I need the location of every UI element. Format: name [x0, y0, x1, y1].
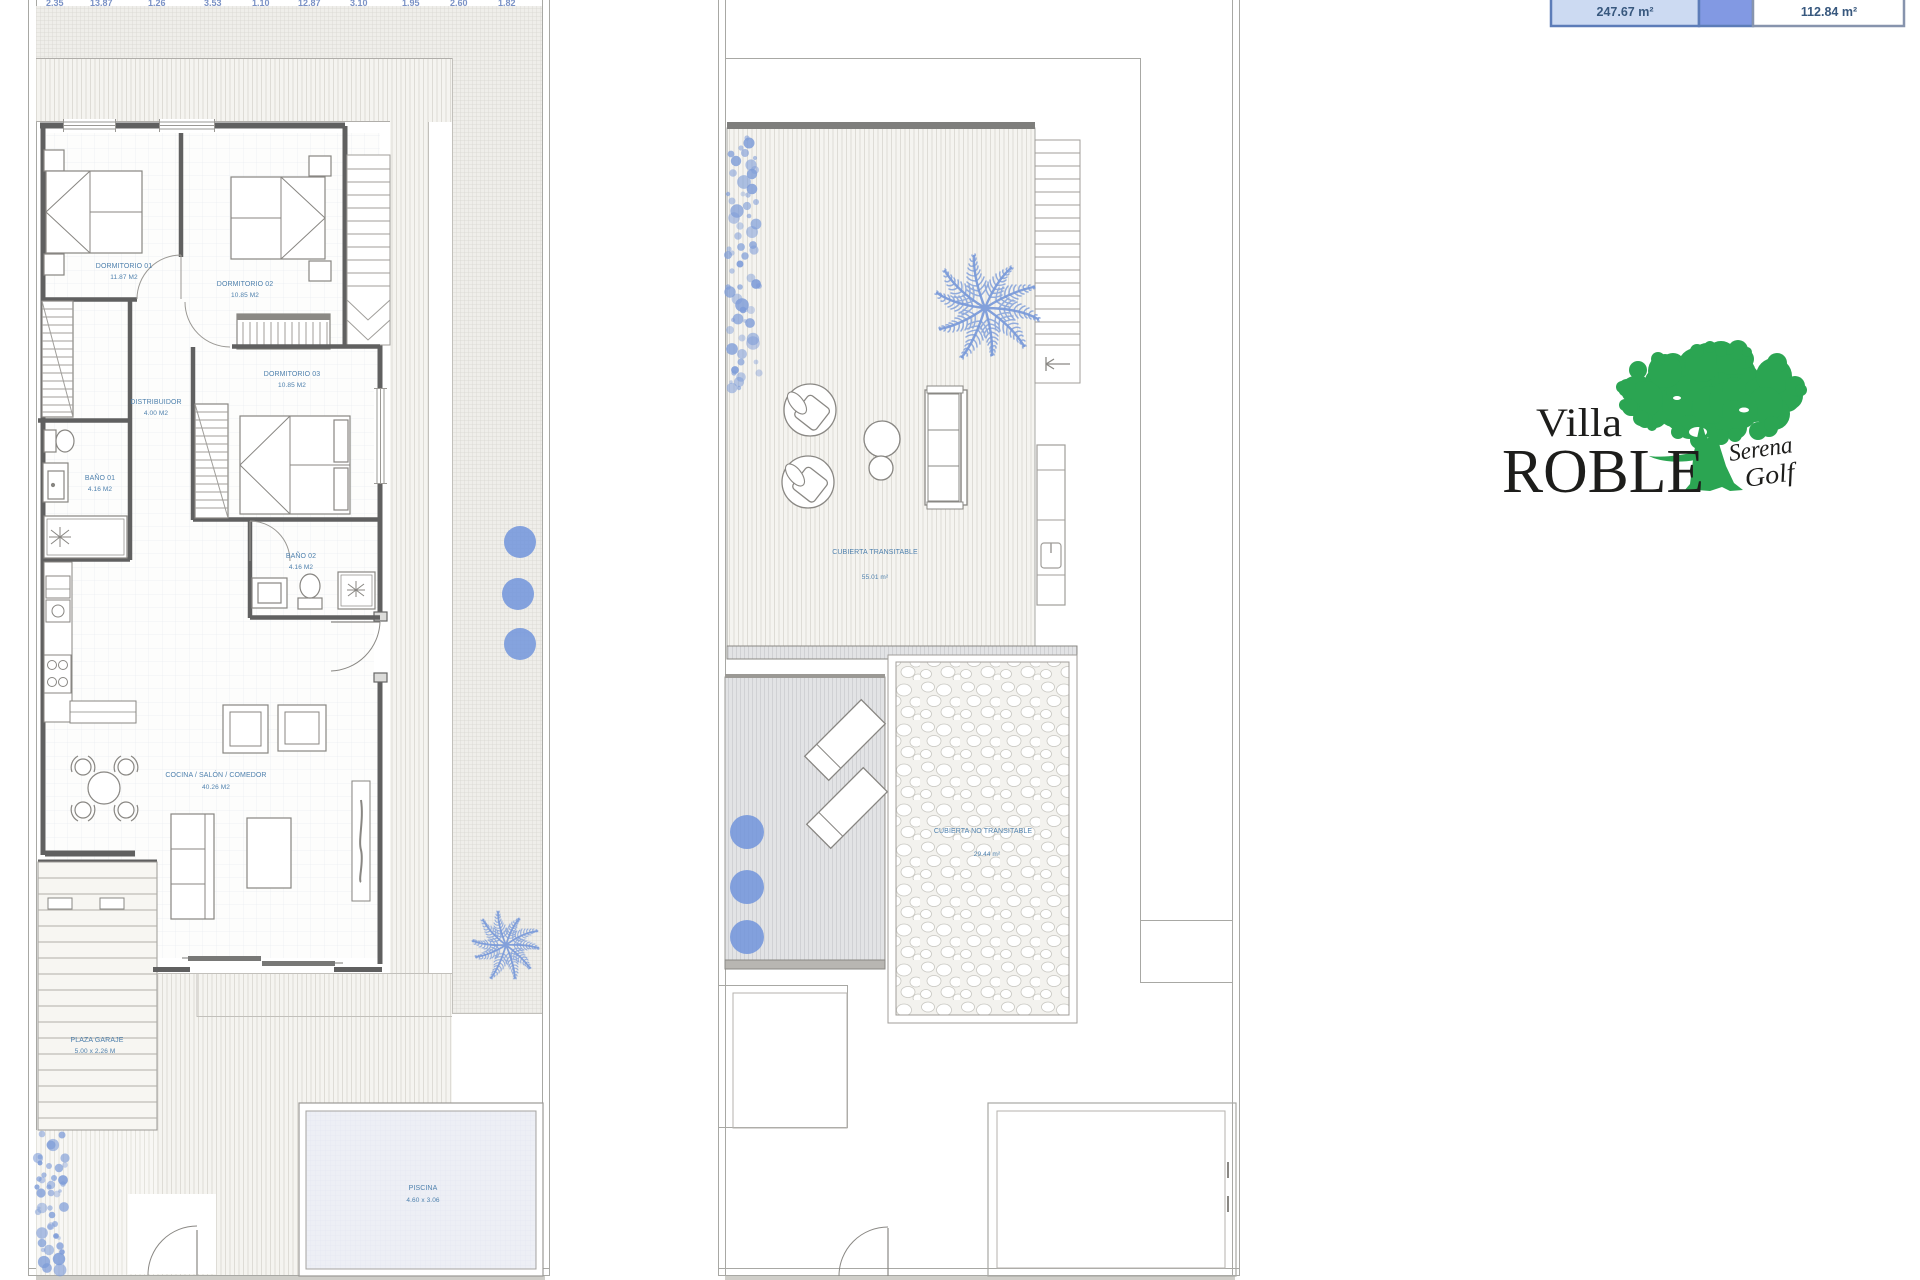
- svg-text:11.87 M2: 11.87 M2: [110, 274, 138, 281]
- svg-text:4.16 M2: 4.16 M2: [88, 486, 112, 493]
- svg-text:13.87: 13.87: [90, 0, 113, 8]
- svg-text:4.16 M2: 4.16 M2: [289, 564, 313, 571]
- svg-text:DORMITORIO 03: DORMITORIO 03: [264, 371, 320, 378]
- svg-text:BAÑO 02: BAÑO 02: [286, 551, 316, 560]
- svg-text:10.85 M2: 10.85 M2: [231, 292, 259, 299]
- svg-text:40.26 M2: 40.26 M2: [202, 784, 230, 791]
- svg-text:1.95: 1.95: [402, 0, 420, 8]
- svg-text:2.60: 2.60: [450, 0, 468, 8]
- svg-text:112.84 m²: 112.84 m²: [1801, 5, 1857, 19]
- svg-text:1.82: 1.82: [498, 0, 516, 8]
- svg-text:ROBLE: ROBLE: [1502, 438, 1704, 506]
- svg-text:4.00 M2: 4.00 M2: [144, 410, 168, 417]
- svg-text:1.26: 1.26: [148, 0, 166, 8]
- svg-text:DORMITORIO 01: DORMITORIO 01: [96, 263, 152, 270]
- svg-text:COCINA / SALÓN / COMEDOR: COCINA / SALÓN / COMEDOR: [165, 770, 266, 779]
- svg-text:3.10: 3.10: [350, 0, 368, 8]
- svg-text:PLAZA GARAJE: PLAZA GARAJE: [71, 1037, 124, 1044]
- svg-text:CUBIERTA TRANSITABLE: CUBIERTA TRANSITABLE: [832, 549, 918, 556]
- svg-text:55.01 m²: 55.01 m²: [862, 574, 889, 581]
- svg-text:5.00 x 2.26 M: 5.00 x 2.26 M: [75, 1048, 116, 1055]
- svg-text:DISTRIBUIDOR: DISTRIBUIDOR: [130, 399, 181, 406]
- svg-text:BAÑO 01: BAÑO 01: [85, 473, 115, 482]
- svg-text:29.44 m²: 29.44 m²: [974, 851, 1001, 858]
- svg-text:3.53: 3.53: [204, 0, 222, 8]
- svg-text:1.10: 1.10: [252, 0, 270, 8]
- svg-text:4.60 x 3.06: 4.60 x 3.06: [406, 1197, 440, 1204]
- svg-text:PISCINA: PISCINA: [409, 1185, 438, 1192]
- svg-text:12.87: 12.87: [298, 0, 321, 8]
- svg-text:247.67 m²: 247.67 m²: [1597, 5, 1654, 19]
- svg-text:DORMITORIO 02: DORMITORIO 02: [217, 281, 273, 288]
- svg-text:2.35: 2.35: [46, 0, 64, 8]
- svg-text:CUBIERTA NO TRANSITABLE: CUBIERTA NO TRANSITABLE: [934, 828, 1032, 835]
- svg-text:10.85 M2: 10.85 M2: [278, 382, 306, 389]
